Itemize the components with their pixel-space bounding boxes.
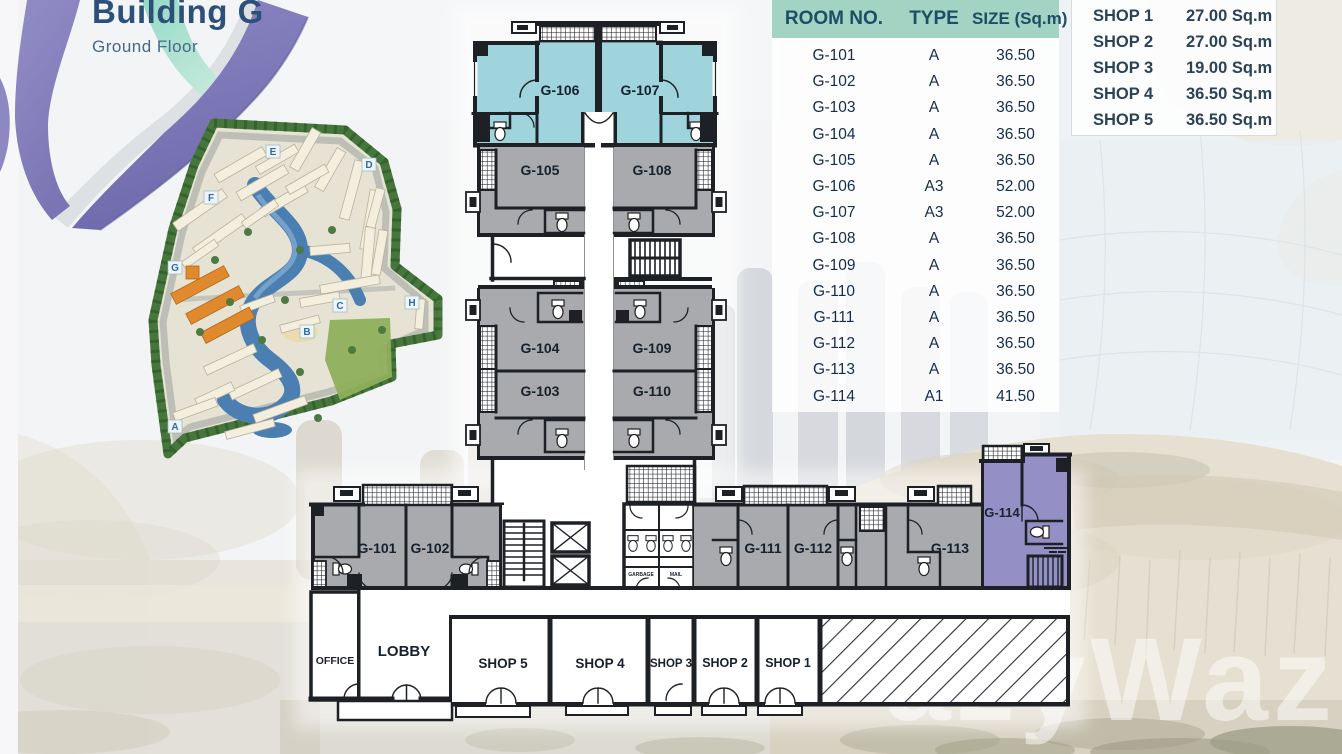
svg-text:OFFICE: OFFICE xyxy=(316,655,355,667)
svg-text:SHOP 1: SHOP 1 xyxy=(765,656,811,670)
svg-text:GARBAGE: GARBAGE xyxy=(628,572,654,578)
svg-text:G-112: G-112 xyxy=(794,540,832,556)
svg-text:G-113: G-113 xyxy=(931,540,969,556)
svg-text:G-114: G-114 xyxy=(984,505,1020,520)
svg-text:G-105: G-105 xyxy=(521,162,560,178)
svg-text:G-111: G-111 xyxy=(744,540,782,556)
svg-text:G-101: G-101 xyxy=(358,540,397,556)
svg-text:G-104: G-104 xyxy=(521,340,560,356)
svg-text:G-108: G-108 xyxy=(633,162,672,178)
svg-text:SHOP 4: SHOP 4 xyxy=(575,656,625,671)
svg-text:SHOP 5: SHOP 5 xyxy=(478,656,528,671)
svg-text:SHOP 2: SHOP 2 xyxy=(702,656,748,670)
svg-text:SHOP 3: SHOP 3 xyxy=(650,658,692,670)
svg-text:G-109: G-109 xyxy=(633,340,672,356)
svg-text:G-106: G-106 xyxy=(541,82,580,98)
svg-text:MAIL: MAIL xyxy=(670,572,682,578)
svg-text:G-110: G-110 xyxy=(633,383,671,399)
svg-text:G-102: G-102 xyxy=(411,540,450,556)
svg-text:LOBBY: LOBBY xyxy=(378,643,431,660)
svg-text:G-103: G-103 xyxy=(521,383,560,399)
svg-text:G-107: G-107 xyxy=(621,82,660,98)
